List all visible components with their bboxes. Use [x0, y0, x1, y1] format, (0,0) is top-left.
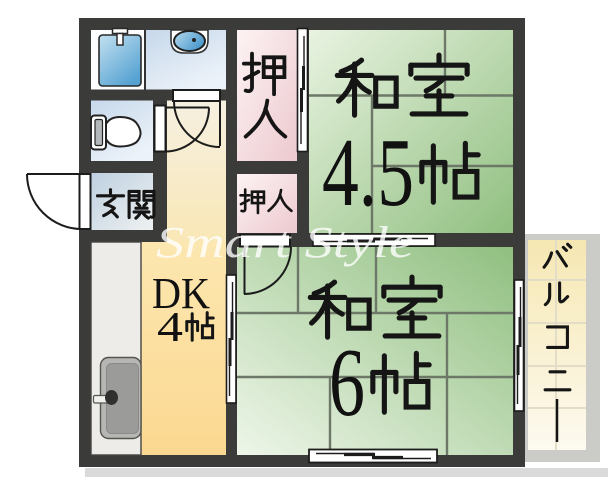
svg-text:6: 6	[329, 329, 365, 436]
svg-text:Smart Style: Smart Style	[156, 218, 414, 267]
svg-text:4.5: 4.5	[322, 119, 414, 226]
svg-text:4: 4	[157, 305, 183, 351]
